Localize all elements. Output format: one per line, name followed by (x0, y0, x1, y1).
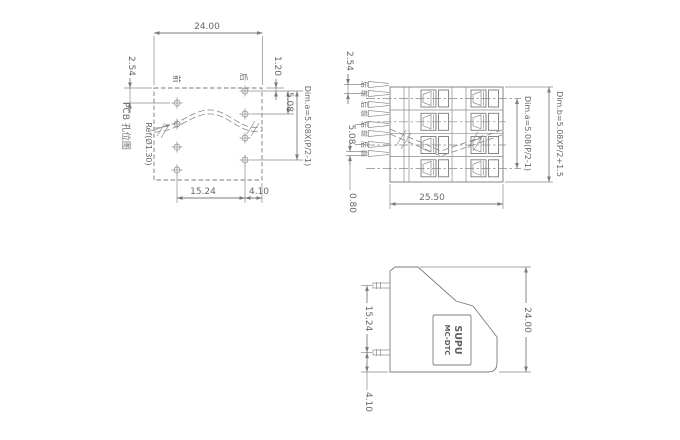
front-dim-height-text: Dim.b=5.08XP/2+1.5 (555, 91, 564, 177)
front-dim-row-pitch-text: 5.08 (346, 124, 356, 144)
front-dim-span: Dim.a=5.08(P/2-1) (517, 96, 532, 171)
front-pin-label-6: 前 (360, 130, 369, 137)
pcb-dim-span-text: Dim.a=5.08X(P/2-1) (303, 86, 312, 166)
side-dim-pin-bottom-offset: 4.10 (361, 353, 388, 413)
pcb-view-title: PCB 孔位图 (120, 102, 132, 150)
side-dim-pin-spacing: 15.24 (361, 286, 373, 353)
front-pin-label-4: 前 (360, 110, 369, 117)
pcb-dim-width-text: 24.00 (194, 22, 220, 32)
pcb-view: 前 后 24.00 2.54 1.20 (120, 22, 312, 203)
side-dim-pin-bottom-offset-text: 4.10 (363, 392, 373, 412)
technical-drawing: 前 后 24.00 2.54 1.20 (0, 0, 680, 440)
front-pin-labels: 后 前 后 前 后 前 后 前 (360, 81, 369, 157)
pcb-dim-top-offset-text: 1.20 (272, 56, 282, 76)
side-dim-body-height: 24.00 (420, 267, 532, 372)
front-wire-pins (369, 81, 390, 157)
pcb-ref-text: Ref(Ø1.30) (144, 122, 154, 165)
pcb-dim-edge-offset-text: 4.10 (249, 187, 269, 197)
front-pin-label-3: 后 (360, 101, 369, 108)
side-pin-top (373, 282, 390, 289)
side-brand-label: SUPU MC-DTC (433, 315, 471, 365)
pcb-dim-row-stagger-text: 2.54 (126, 56, 136, 76)
pcb-outline (154, 88, 262, 180)
front-dim-height: Dim.b=5.08XP/2+1.5 (505, 87, 564, 182)
side-view: SUPU MC-DTC 15.24 4.10 24.00 (361, 267, 532, 412)
pcb-front-column-label: 前 (172, 75, 182, 83)
front-dim-pin-stagger-text: 2.54 (344, 51, 354, 71)
front-dim-span-text: Dim.a=5.08(P/2-1) (523, 96, 532, 171)
front-dim-body-width-text: 25.50 (419, 193, 445, 203)
brand-series-text: MC-DTC (443, 325, 451, 356)
front-view: 后 前 后 前 后 前 后 前 2.54 5.08 (344, 51, 564, 213)
pcb-dim-hole-pitch: 5.08 (251, 91, 294, 114)
pcb-ref-callout: Ref(Ø1.30) (144, 122, 170, 165)
pcb-holes-front-column (172, 98, 183, 176)
side-dim-body-height-text: 24.00 (522, 307, 532, 333)
front-dim-body-width: 25.50 (390, 184, 503, 209)
side-pin-bottom (373, 349, 390, 356)
pcb-dim-span: Dim.a=5.08X(P/2-1) (251, 86, 312, 166)
brand-name-text: SUPU (452, 325, 463, 354)
side-dim-pin-spacing-text: 15.24 (363, 306, 373, 332)
brand-label-box (433, 315, 471, 365)
drawing-canvas: 前 后 24.00 2.54 1.20 (0, 0, 680, 440)
pcb-dim-hole-pitch-text: 5.08 (284, 92, 294, 112)
pcb-back-column-label: 后 (239, 73, 249, 81)
pcb-dim-top-offset: 1.20 (251, 56, 303, 100)
front-dim-pin-thickness-text: 0.80 (347, 193, 357, 213)
pcb-dim-col-spacing: 15.24 4.10 (177, 165, 269, 203)
pcb-dim-col-spacing-text: 15.24 (190, 187, 216, 197)
side-body-outline (390, 267, 497, 372)
front-pin-label-8: 前 (360, 150, 369, 157)
